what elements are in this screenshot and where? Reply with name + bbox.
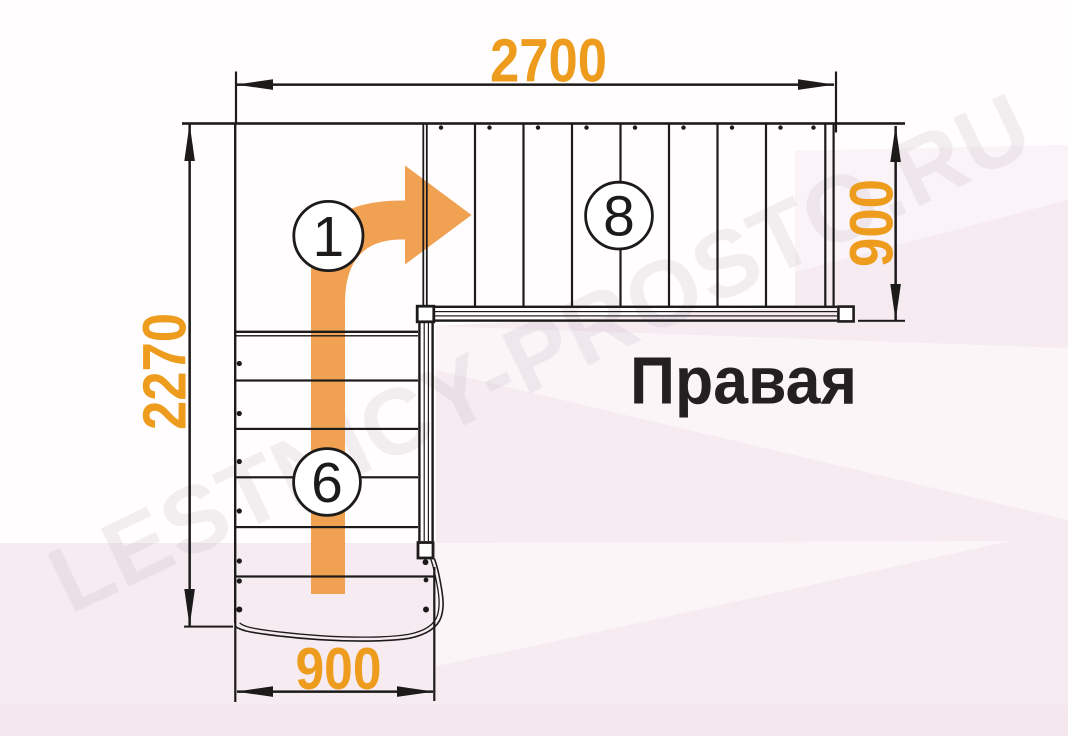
svg-text:8: 8 xyxy=(603,184,635,248)
svg-text:6: 6 xyxy=(311,451,343,515)
svg-text:900: 900 xyxy=(296,636,382,702)
svg-text:900: 900 xyxy=(838,179,906,267)
svg-text:Правая: Правая xyxy=(630,344,857,419)
svg-text:2700: 2700 xyxy=(490,27,607,95)
svg-text:2270: 2270 xyxy=(131,313,199,430)
svg-text:1: 1 xyxy=(313,205,345,269)
